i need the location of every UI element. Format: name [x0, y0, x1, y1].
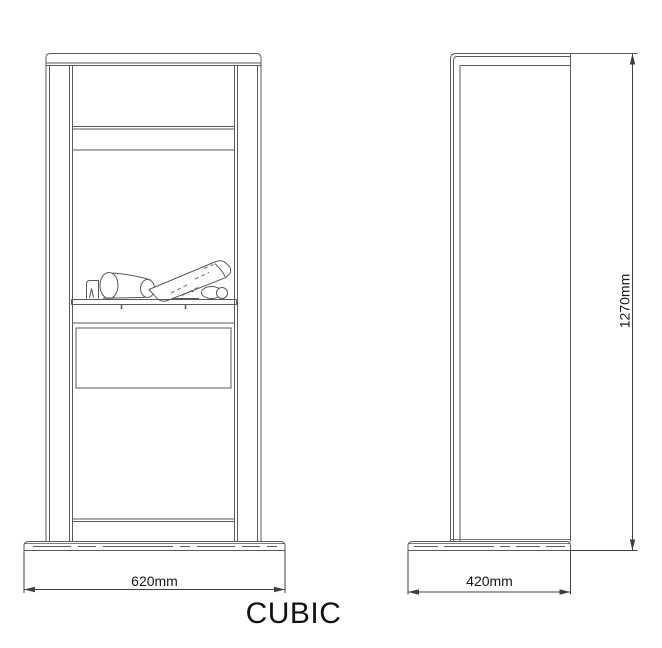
- log-horizontal-end: [100, 273, 118, 299]
- drawing-svg: [0, 0, 662, 648]
- log-round-end: [217, 288, 228, 299]
- side-view: [408, 54, 638, 595]
- log-stump: [87, 281, 99, 299]
- fire-logs: [87, 261, 231, 302]
- side-body: [451, 54, 638, 542]
- front-view: [24, 54, 285, 594]
- burner-shelf: [72, 300, 237, 310]
- side-base: [408, 542, 571, 551]
- technical-drawing-canvas: 620mm 420mm 1270mm CUBIC: [0, 0, 662, 648]
- front-width-dimension-label: 620mm: [94, 574, 215, 588]
- side-depth-dimension-label: 420mm: [429, 574, 550, 588]
- fuel-box-panel: [76, 328, 231, 388]
- front-panels: [73, 127, 235, 522]
- product-title: CUBIC: [213, 596, 374, 632]
- front-base: [24, 542, 285, 551]
- height-dimension-label: 1270mm: [618, 266, 632, 337]
